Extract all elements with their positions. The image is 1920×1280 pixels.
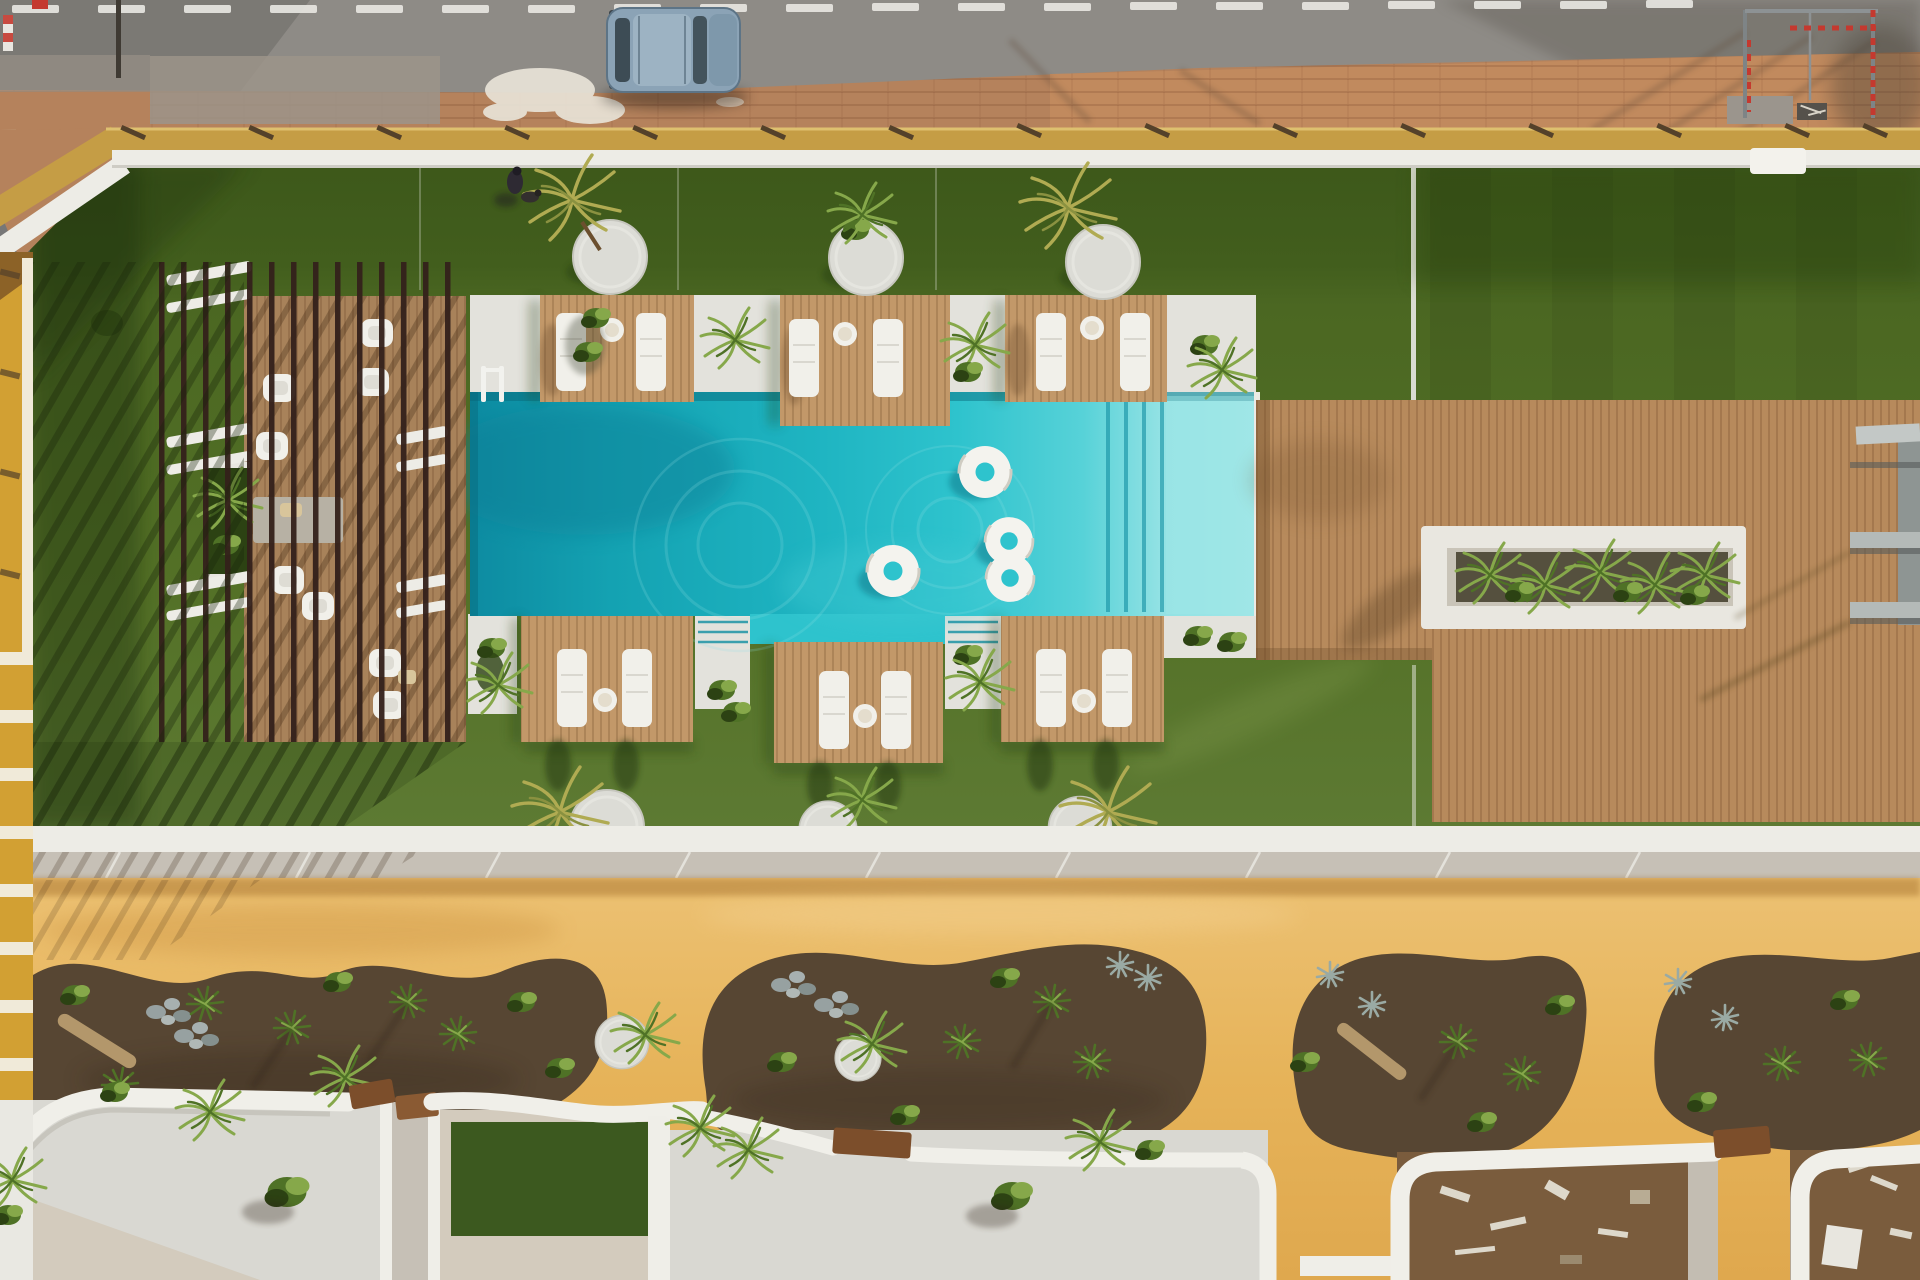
parked-car [601,8,749,109]
platform-top-3 [1005,295,1167,402]
corridor-wall [1300,1256,1404,1276]
turf-patio [451,1122,648,1236]
wall-bracket [1750,148,1806,174]
striped-pole [3,15,13,51]
shallow-shelf [1166,396,1256,614]
garden-bed-4 [1654,952,1920,1151]
concrete-pad [1727,96,1793,124]
slat-shadows-lawn [33,262,244,742]
aerial-photo-stage [0,0,1920,1280]
lawn-dark-band [1416,162,1920,282]
swim-ring-1 [959,446,1011,498]
south-boundary [30,826,1920,878]
pool-water [435,392,1260,651]
platform-top-2 [780,295,950,426]
swim-ring-2 [867,545,919,597]
boundary-fence-strip [106,123,1920,174]
pergola [33,261,466,830]
bright-seam [1411,162,1416,402]
weathered-patch [150,56,440,124]
swim-ring-4 [986,554,1034,602]
platform-top-1 [540,295,694,402]
terrace-5 [1790,1150,1920,1280]
lamppost [116,0,121,78]
red-object [32,0,48,9]
terrace-2 [432,1101,702,1280]
terrace-gate-2 [832,1127,912,1158]
aerial-resort-scene [0,0,1920,1280]
terrace-gate-3 [1713,1126,1771,1159]
south-wall [30,826,1920,852]
